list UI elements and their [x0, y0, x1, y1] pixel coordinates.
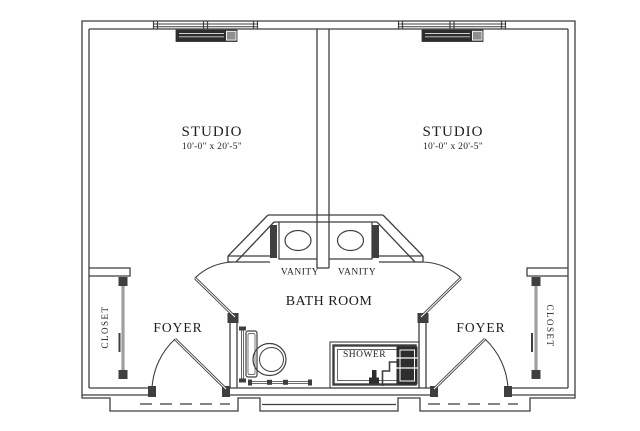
window-left [153, 22, 258, 29]
studio-left-dims: 10'-0" x 20'-5" [182, 142, 242, 152]
vanity-counters [279, 222, 372, 259]
studio-left-label: STUDIO [182, 124, 243, 140]
vanity-angle-wall-right [377, 215, 423, 262]
bathroom-door-right-arc [421, 262, 461, 278]
shower-label: SHOWER [343, 350, 386, 360]
floor-plan-canvas: STUDIO 10'-0" x 20'-5" STUDIO 10'-0" x 2… [0, 0, 640, 431]
bathroom-label: BATH ROOM [286, 294, 373, 309]
shower-pipe [383, 362, 398, 386]
vanity-top-wall [268, 215, 383, 222]
vanity-stub-right [379, 256, 423, 262]
shower-valve [369, 378, 379, 384]
foyer-right-label: FOYER [456, 320, 505, 335]
closet-right-label: CLOSET [545, 304, 555, 347]
entry-door-right-arc [485, 339, 508, 388]
toilet [239, 327, 312, 386]
walls [82, 21, 575, 411]
vanity-left-label: VANITY [281, 268, 319, 278]
shower [330, 342, 419, 388]
entry-door-left-arc [152, 339, 175, 388]
labels: STUDIO 10'-0" x 20'-5" STUDIO 10'-0" x 2… [100, 124, 555, 360]
bathroom-wall-east [419, 323, 426, 388]
bathroom-wall-west [230, 323, 237, 388]
vanity-counter-right [329, 222, 372, 259]
closet-wall-right [527, 268, 568, 276]
closet-left-label: CLOSET [100, 305, 110, 348]
vanity-angle-wall-left [228, 215, 274, 262]
heater-left [176, 30, 237, 42]
studio-right-label: STUDIO [423, 124, 484, 140]
heater-right [422, 30, 483, 42]
vanity-stub-left [228, 256, 270, 262]
vanity-sink-left [285, 231, 311, 251]
closet-wall-left [89, 268, 130, 276]
foyer-left-label: FOYER [153, 320, 202, 335]
studio-right-dims: 10'-0" x 20'-5" [423, 142, 483, 152]
floor-plan-svg: STUDIO 10'-0" x 20'-5" STUDIO 10'-0" x 2… [0, 0, 640, 431]
toilet-bowl [253, 344, 286, 376]
party-wall [317, 29, 329, 268]
vanity-jambs [270, 225, 379, 258]
window-right [398, 22, 506, 29]
bathroom-door-left-arc [195, 262, 235, 278]
vanity-right-label: VANITY [338, 268, 376, 278]
vanity-sink-right [338, 231, 364, 251]
